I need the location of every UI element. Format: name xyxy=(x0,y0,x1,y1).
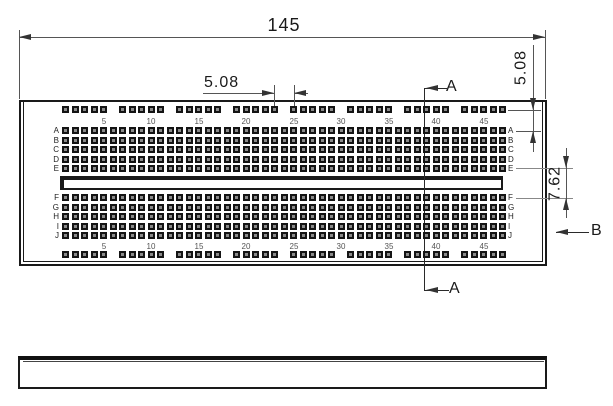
hole xyxy=(148,146,155,153)
hole xyxy=(452,204,459,211)
hole xyxy=(271,223,278,230)
column-number: 15 xyxy=(190,242,208,251)
hole xyxy=(357,204,364,211)
hole xyxy=(72,156,79,163)
hole xyxy=(110,156,117,163)
hole xyxy=(490,204,497,211)
hole xyxy=(461,156,468,163)
column-number: 5 xyxy=(95,117,113,126)
hole xyxy=(176,127,183,134)
hole xyxy=(309,106,316,113)
column-number: 10 xyxy=(142,117,160,126)
hole xyxy=(338,146,345,153)
hole xyxy=(100,232,107,239)
row-label: E xyxy=(508,164,522,173)
hole xyxy=(499,156,506,163)
hole xyxy=(442,165,449,172)
hole xyxy=(100,156,107,163)
hole xyxy=(186,213,193,220)
hole xyxy=(243,156,250,163)
hole xyxy=(338,165,345,172)
hole xyxy=(452,127,459,134)
hole xyxy=(480,213,487,220)
hole xyxy=(385,106,392,113)
hole xyxy=(271,156,278,163)
hole xyxy=(328,156,335,163)
hole xyxy=(290,213,297,220)
hole xyxy=(281,223,288,230)
hole xyxy=(480,106,487,113)
hole xyxy=(414,146,421,153)
hole xyxy=(281,127,288,134)
hole xyxy=(129,156,136,163)
hole xyxy=(442,106,449,113)
hole xyxy=(91,146,98,153)
hole xyxy=(319,127,326,134)
dim-label-channel-span: 7.62 xyxy=(547,160,564,208)
hole xyxy=(119,165,126,172)
column-number: 25 xyxy=(285,117,303,126)
hole xyxy=(252,165,259,172)
hole xyxy=(252,213,259,220)
hole xyxy=(300,204,307,211)
hole xyxy=(195,194,202,201)
hole xyxy=(91,213,98,220)
hole xyxy=(252,106,259,113)
hole xyxy=(186,127,193,134)
row-label: D xyxy=(45,155,59,164)
hole xyxy=(186,106,193,113)
hole xyxy=(328,106,335,113)
hole xyxy=(157,165,164,172)
hole xyxy=(186,165,193,172)
hole xyxy=(100,223,107,230)
section-a-bottom-label: A xyxy=(449,280,460,298)
hole xyxy=(338,127,345,134)
hole xyxy=(119,204,126,211)
hole xyxy=(442,213,449,220)
hole xyxy=(300,106,307,113)
hole xyxy=(129,106,136,113)
hole xyxy=(72,165,79,172)
arrow-width-left-icon xyxy=(19,34,31,40)
hole xyxy=(319,232,326,239)
row-label: C xyxy=(45,145,59,154)
hole xyxy=(376,251,383,258)
hole xyxy=(404,106,411,113)
hole xyxy=(271,146,278,153)
hole xyxy=(328,127,335,134)
hole xyxy=(290,251,297,258)
hole xyxy=(366,165,373,172)
hole xyxy=(404,251,411,258)
hole xyxy=(281,213,288,220)
hole xyxy=(205,194,212,201)
hole xyxy=(148,194,155,201)
hole xyxy=(81,165,88,172)
hole xyxy=(281,165,288,172)
hole xyxy=(252,127,259,134)
hole xyxy=(195,213,202,220)
row-label: E xyxy=(45,164,59,173)
hole xyxy=(148,137,155,144)
hole xyxy=(461,213,468,220)
hole xyxy=(290,127,297,134)
hole xyxy=(72,106,79,113)
ext-tick-rail-gap-left xyxy=(274,85,275,106)
hole xyxy=(62,194,69,201)
hole xyxy=(62,106,69,113)
hole xyxy=(490,223,497,230)
hole xyxy=(157,127,164,134)
hole xyxy=(442,146,449,153)
ext-line-width-right xyxy=(545,30,546,99)
hole xyxy=(129,146,136,153)
hole xyxy=(100,127,107,134)
hole xyxy=(414,223,421,230)
hole xyxy=(395,146,402,153)
hole xyxy=(91,251,98,258)
hole xyxy=(414,251,421,258)
hole xyxy=(309,194,316,201)
hole xyxy=(271,194,278,201)
hole xyxy=(243,204,250,211)
section-a-bottom-arrow-icon xyxy=(426,287,438,293)
breadboard-side-view xyxy=(18,356,547,389)
hole xyxy=(300,137,307,144)
hole xyxy=(347,165,354,172)
hole xyxy=(319,156,326,163)
hole xyxy=(110,204,117,211)
hole xyxy=(480,146,487,153)
column-number: 20 xyxy=(237,117,255,126)
row-label: C xyxy=(508,145,522,154)
hole xyxy=(499,213,506,220)
hole xyxy=(347,223,354,230)
hole xyxy=(300,127,307,134)
hole xyxy=(167,165,174,172)
hole xyxy=(414,194,421,201)
hole xyxy=(328,165,335,172)
hole xyxy=(442,137,449,144)
hole xyxy=(262,204,269,211)
hole xyxy=(81,232,88,239)
hole xyxy=(81,156,88,163)
hole xyxy=(471,223,478,230)
hole xyxy=(110,165,117,172)
hole xyxy=(376,106,383,113)
hole xyxy=(224,213,231,220)
hole xyxy=(195,223,202,230)
hole xyxy=(433,137,440,144)
hole xyxy=(319,213,326,220)
hole xyxy=(300,146,307,153)
row-label: J xyxy=(508,231,522,240)
hole xyxy=(290,232,297,239)
hole xyxy=(319,106,326,113)
dim-label-board-width: 145 xyxy=(258,16,310,35)
hole xyxy=(110,146,117,153)
hole xyxy=(376,137,383,144)
hole xyxy=(129,204,136,211)
hole xyxy=(167,204,174,211)
arrow-channel-top-icon xyxy=(563,156,569,168)
hole xyxy=(176,165,183,172)
side-view-bevel-line xyxy=(23,361,544,362)
hole xyxy=(281,232,288,239)
hole xyxy=(461,137,468,144)
hole xyxy=(129,127,136,134)
row-label: H xyxy=(45,212,59,221)
hole xyxy=(72,146,79,153)
hole xyxy=(224,156,231,163)
hole xyxy=(347,251,354,258)
hole xyxy=(480,165,487,172)
hole xyxy=(205,106,212,113)
hole xyxy=(138,251,145,258)
hole xyxy=(461,223,468,230)
hole xyxy=(214,251,221,258)
technical-drawing-canvas: 145 5.08 5.08 7.62 A A B AABBCCDDEEFFGGH… xyxy=(0,0,613,406)
hole xyxy=(461,146,468,153)
hole xyxy=(290,106,297,113)
hole xyxy=(252,194,259,201)
hole xyxy=(186,194,193,201)
hole xyxy=(471,127,478,134)
hole xyxy=(271,165,278,172)
hole xyxy=(281,194,288,201)
hole xyxy=(461,127,468,134)
hole xyxy=(243,137,250,144)
hole xyxy=(395,137,402,144)
hole xyxy=(404,223,411,230)
hole xyxy=(233,213,240,220)
hole xyxy=(186,156,193,163)
hole xyxy=(376,223,383,230)
hole xyxy=(100,106,107,113)
hole xyxy=(81,213,88,220)
hole xyxy=(91,137,98,144)
hole xyxy=(347,156,354,163)
hole xyxy=(423,146,430,153)
hole xyxy=(347,204,354,211)
hole xyxy=(281,146,288,153)
hole xyxy=(452,156,459,163)
hole xyxy=(414,137,421,144)
column-number: 35 xyxy=(380,117,398,126)
hole xyxy=(110,223,117,230)
hole xyxy=(62,127,69,134)
hole xyxy=(62,165,69,172)
hole xyxy=(376,146,383,153)
hole xyxy=(262,127,269,134)
row-label: G xyxy=(45,203,59,212)
hole xyxy=(138,146,145,153)
hole xyxy=(290,165,297,172)
hole xyxy=(91,127,98,134)
hole xyxy=(471,204,478,211)
hole xyxy=(262,137,269,144)
hole xyxy=(233,251,240,258)
hole xyxy=(499,137,506,144)
hole xyxy=(423,213,430,220)
hole xyxy=(490,194,497,201)
hole xyxy=(262,194,269,201)
hole xyxy=(129,213,136,220)
hole xyxy=(62,223,69,230)
hole xyxy=(91,156,98,163)
hole xyxy=(138,204,145,211)
hole xyxy=(224,194,231,201)
hole xyxy=(404,165,411,172)
hole xyxy=(499,223,506,230)
hole xyxy=(385,204,392,211)
hole xyxy=(433,146,440,153)
hole xyxy=(423,127,430,134)
hole xyxy=(233,204,240,211)
hole xyxy=(366,106,373,113)
hole xyxy=(376,194,383,201)
hole xyxy=(414,165,421,172)
row-label: B xyxy=(508,136,522,145)
hole xyxy=(490,106,497,113)
hole xyxy=(138,137,145,144)
hole xyxy=(347,127,354,134)
hole xyxy=(91,204,98,211)
hole xyxy=(499,106,506,113)
hole xyxy=(404,194,411,201)
hole xyxy=(271,106,278,113)
hole xyxy=(357,223,364,230)
hole xyxy=(233,106,240,113)
hole xyxy=(262,156,269,163)
hole xyxy=(404,146,411,153)
hole xyxy=(471,232,478,239)
hole xyxy=(138,156,145,163)
hole xyxy=(72,137,79,144)
hole xyxy=(433,106,440,113)
hole xyxy=(205,156,212,163)
hole xyxy=(385,165,392,172)
row-label: F xyxy=(45,193,59,202)
hole xyxy=(395,223,402,230)
hole xyxy=(385,127,392,134)
hole xyxy=(81,146,88,153)
hole xyxy=(214,146,221,153)
hole xyxy=(376,156,383,163)
hole xyxy=(423,165,430,172)
hole xyxy=(176,156,183,163)
hole xyxy=(252,146,259,153)
hole xyxy=(167,194,174,201)
hole xyxy=(138,213,145,220)
hole xyxy=(433,232,440,239)
hole xyxy=(129,251,136,258)
hole xyxy=(309,137,316,144)
hole xyxy=(243,232,250,239)
hole xyxy=(442,127,449,134)
hole xyxy=(119,137,126,144)
hole xyxy=(100,204,107,211)
hole xyxy=(186,251,193,258)
hole xyxy=(300,251,307,258)
hole xyxy=(366,194,373,201)
hole xyxy=(262,223,269,230)
hole xyxy=(91,194,98,201)
hole xyxy=(471,137,478,144)
hole xyxy=(262,251,269,258)
hole xyxy=(461,106,468,113)
hole xyxy=(157,251,164,258)
hole xyxy=(148,127,155,134)
hole xyxy=(72,204,79,211)
row-label: D xyxy=(508,155,522,164)
hole xyxy=(148,156,155,163)
hole xyxy=(309,251,316,258)
hole xyxy=(338,194,345,201)
row-label: B xyxy=(45,136,59,145)
row-label: G xyxy=(508,203,522,212)
hole xyxy=(309,213,316,220)
hole xyxy=(452,146,459,153)
column-number: 40 xyxy=(427,117,445,126)
hole xyxy=(309,156,316,163)
hole xyxy=(195,137,202,144)
hole xyxy=(224,232,231,239)
hole xyxy=(366,223,373,230)
hole xyxy=(262,165,269,172)
hole xyxy=(490,127,497,134)
hole xyxy=(471,106,478,113)
section-a-cut-line xyxy=(424,88,425,290)
hole xyxy=(157,232,164,239)
hole xyxy=(376,127,383,134)
hole xyxy=(499,204,506,211)
hole xyxy=(91,106,98,113)
hole xyxy=(423,137,430,144)
hole xyxy=(271,251,278,258)
hole xyxy=(214,156,221,163)
column-number: 10 xyxy=(142,242,160,251)
hole xyxy=(157,156,164,163)
hole xyxy=(328,251,335,258)
hole xyxy=(433,213,440,220)
hole xyxy=(319,146,326,153)
hole xyxy=(214,106,221,113)
hole xyxy=(167,137,174,144)
row-label: I xyxy=(508,222,522,231)
hole xyxy=(148,165,155,172)
hole xyxy=(366,204,373,211)
hole xyxy=(490,165,497,172)
ext-line-rail-row xyxy=(508,110,541,111)
hole xyxy=(119,251,126,258)
hole xyxy=(176,204,183,211)
hole xyxy=(366,232,373,239)
hole xyxy=(91,223,98,230)
hole xyxy=(110,137,117,144)
hole xyxy=(214,213,221,220)
hole xyxy=(471,146,478,153)
arrow-rail-offset-top-icon xyxy=(530,98,536,110)
hole xyxy=(252,137,259,144)
column-number: 40 xyxy=(427,242,445,251)
hole xyxy=(176,137,183,144)
hole xyxy=(433,251,440,258)
hole xyxy=(81,194,88,201)
hole xyxy=(499,251,506,258)
hole xyxy=(433,127,440,134)
